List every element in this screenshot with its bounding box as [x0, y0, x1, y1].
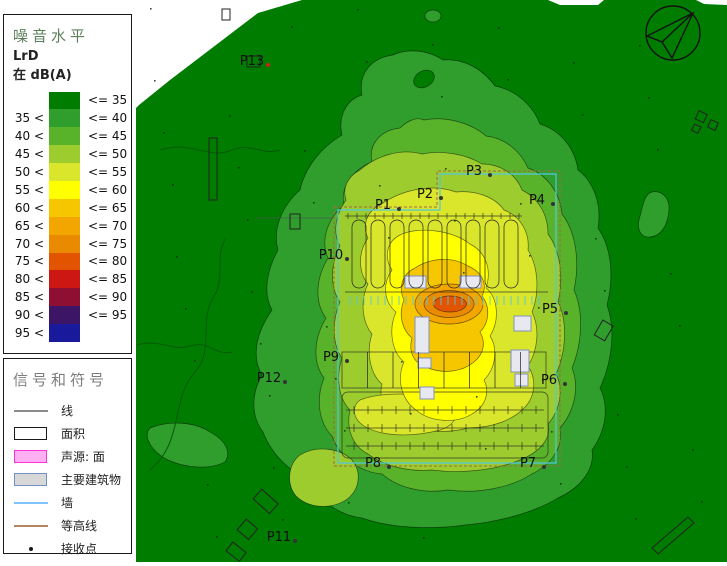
- receiver-label-P1[interactable]: P1: [375, 198, 391, 213]
- survey-mark: [282, 519, 284, 521]
- receiver-point-P2[interactable]: [439, 196, 443, 200]
- survey-mark: [582, 114, 584, 116]
- survey-mark: [150, 8, 152, 10]
- scale-to-label: <= 75: [80, 237, 127, 251]
- survey-mark: [326, 326, 328, 328]
- scale-to-label: <= 80: [80, 254, 127, 268]
- noise-zone-35-40-top: [425, 10, 441, 22]
- noise-scale-row: 80 <<= 85: [4, 270, 131, 288]
- receiver-label-P9[interactable]: P9: [323, 350, 339, 365]
- survey-mark: [269, 395, 271, 397]
- survey-mark: [388, 237, 390, 239]
- survey-mark: [626, 466, 628, 468]
- survey-mark: [485, 448, 487, 450]
- line-symbol: [14, 525, 48, 527]
- line-symbol-icon: [12, 502, 49, 504]
- symbol-row: 墙: [4, 491, 131, 514]
- symbol-row: 主要建筑物: [4, 468, 131, 491]
- scale-from-label: 35 <: [4, 111, 49, 125]
- rect-symbol-icon: [12, 473, 49, 486]
- scale-from-label: 95 <: [4, 326, 49, 340]
- scale-to-label: <= 40: [80, 111, 127, 125]
- receiver-label-P10[interactable]: P10: [319, 248, 343, 263]
- scale-color-swatch: [49, 181, 80, 199]
- receiver-point-P4[interactable]: [551, 202, 555, 206]
- noise-scale-row: 65 <<= 70: [4, 217, 131, 235]
- scale-color-swatch: [49, 145, 80, 163]
- noise-scale-row: 75 <<= 80: [4, 253, 131, 271]
- survey-mark: [670, 273, 672, 275]
- scale-from-label: 85 <: [4, 290, 49, 304]
- noise-legend-quantity: LrD: [13, 49, 131, 65]
- survey-mark: [595, 238, 597, 240]
- scale-to-label: <= 65: [80, 201, 127, 215]
- noise-legend-title: 噪音水平: [13, 25, 131, 46]
- survey-mark: [463, 272, 465, 274]
- rect-symbol: [14, 427, 47, 440]
- receiver-label-P8[interactable]: P8: [365, 456, 381, 471]
- noise-legend-unit: 在 dB(A): [13, 68, 131, 84]
- noise-scale-row: 50 <<= 55: [4, 163, 131, 181]
- noise-level-legend: 噪音水平 LrD 在 dB(A) <= 3535 <<= 4040 <<= 45…: [3, 14, 132, 354]
- receiver-label-P2[interactable]: P2: [417, 187, 433, 202]
- survey-mark: [551, 431, 553, 433]
- symbol-list: 线面积声源: 面主要建筑物墙等高线接收点: [4, 399, 131, 560]
- noise-scale-row: <= 35: [4, 92, 131, 110]
- rect-symbol: [14, 473, 47, 486]
- receiver-point-P12[interactable]: [283, 380, 287, 384]
- line-symbol-icon: [12, 525, 49, 527]
- receiver-label-P3[interactable]: P3: [466, 164, 482, 179]
- receiver-point-P9[interactable]: [345, 359, 349, 363]
- receiver-label-P7[interactable]: P7: [520, 456, 536, 471]
- symbol-label: 等高线: [61, 517, 97, 534]
- scale-color-swatch: [49, 127, 80, 145]
- survey-mark: [348, 502, 350, 504]
- receiver-point-P3[interactable]: [488, 173, 492, 177]
- survey-mark: [273, 467, 275, 469]
- symbol-legend-title: 信号和符号: [13, 369, 131, 390]
- survey-mark: [507, 79, 509, 81]
- survey-mark: [291, 26, 293, 28]
- scale-color-swatch: [49, 199, 80, 217]
- receiver-point-P1[interactable]: [397, 207, 401, 211]
- symbol-row: 声源: 面: [4, 445, 131, 468]
- survey-mark: [476, 396, 478, 398]
- scale-to-label: <= 55: [80, 165, 127, 179]
- scale-to-label: <= 45: [80, 129, 127, 143]
- receiver-label-P13[interactable]: P13: [240, 54, 264, 69]
- scale-from-label: 45 <: [4, 147, 49, 161]
- survey-mark: [657, 149, 659, 151]
- survey-mark: [679, 325, 681, 327]
- survey-mark: [163, 132, 165, 134]
- scale-color-swatch: [49, 92, 80, 110]
- survey-mark: [529, 255, 531, 257]
- survey-mark: [207, 484, 209, 486]
- survey-mark: [216, 536, 218, 538]
- symbol-row: 线: [4, 399, 131, 422]
- survey-mark: [701, 501, 703, 503]
- symbol-label: 线: [61, 402, 73, 419]
- survey-mark: [185, 308, 187, 310]
- receiver-point-P7[interactable]: [542, 465, 546, 469]
- symbol-row: 面积: [4, 422, 131, 445]
- survey-mark: [260, 343, 262, 345]
- survey-mark: [635, 518, 637, 520]
- scale-color-swatch: [49, 270, 80, 288]
- survey-mark: [639, 45, 641, 47]
- receiver-point-P10[interactable]: [345, 257, 349, 261]
- survey-mark: [247, 219, 249, 221]
- scale-color-swatch: [49, 288, 80, 306]
- scale-from-label: 65 <: [4, 219, 49, 233]
- scale-from-label: 75 <: [4, 254, 49, 268]
- scale-to-label: <= 35: [80, 93, 127, 107]
- symbol-label: 接收点: [61, 540, 97, 557]
- survey-mark: [238, 167, 240, 169]
- receiver-point-P5[interactable]: [564, 311, 568, 315]
- rect-symbol-icon: [12, 450, 49, 463]
- symbol-row: 接收点: [4, 537, 131, 560]
- symbol-label: 声源: 面: [61, 448, 105, 465]
- rect-symbol: [14, 450, 47, 463]
- scale-color-swatch: [49, 163, 80, 181]
- survey-mark: [194, 360, 196, 362]
- noise-scale-row: 85 <<= 90: [4, 288, 131, 306]
- survey-mark: [538, 307, 540, 309]
- survey-mark: [410, 413, 412, 415]
- line-symbol-icon: [12, 410, 49, 412]
- scale-color-swatch: [49, 235, 80, 253]
- survey-mark: [176, 256, 178, 258]
- noise-scale-row: 40 <<= 45: [4, 127, 131, 145]
- dot-symbol-icon: [12, 547, 49, 551]
- scale-color-swatch: [49, 253, 80, 271]
- survey-mark: [454, 220, 456, 222]
- noise-scale-row: 90 <<= 95: [4, 306, 131, 324]
- survey-mark: [617, 414, 619, 416]
- symbol-label: 面积: [61, 425, 85, 442]
- survey-mark: [520, 203, 522, 205]
- symbol-label: 墙: [61, 494, 73, 511]
- scale-to-label: <= 60: [80, 183, 127, 197]
- survey-mark: [648, 97, 650, 99]
- symbol-legend: 信号和符号 线面积声源: 面主要建筑物墙等高线接收点: [3, 358, 132, 554]
- survey-mark: [423, 537, 425, 539]
- dot-symbol: [29, 547, 33, 551]
- survey-mark: [357, 9, 359, 11]
- survey-mark: [604, 290, 606, 292]
- survey-mark: [172, 184, 174, 186]
- scale-from-label: 60 <: [4, 201, 49, 215]
- noise-zone-45-50-lobe: [290, 449, 359, 506]
- scale-color-swatch: [49, 217, 80, 235]
- scale-from-label: 70 <: [4, 237, 49, 251]
- noise-scale-row: 35 <<= 40: [4, 109, 131, 127]
- receiver-point-P6[interactable]: [563, 382, 567, 386]
- survey-mark: [432, 44, 434, 46]
- line-symbol: [14, 502, 48, 504]
- survey-mark: [304, 150, 306, 152]
- survey-mark: [560, 483, 562, 485]
- line-symbol: [14, 410, 48, 412]
- survey-mark: [154, 80, 156, 82]
- scale-from-label: 90 <: [4, 308, 49, 322]
- receiver-label-P12[interactable]: P12: [257, 371, 281, 386]
- scale-to-label: <= 70: [80, 219, 127, 233]
- receiver-label-P11[interactable]: P11: [267, 530, 291, 545]
- scale-color-swatch: [49, 306, 80, 324]
- survey-mark: [335, 378, 337, 380]
- survey-mark: [441, 96, 443, 98]
- rect-symbol-icon: [12, 427, 49, 440]
- survey-mark: [401, 361, 403, 363]
- receiver-label-P6[interactable]: P6: [541, 373, 557, 388]
- survey-mark: [313, 202, 315, 204]
- scale-color-swatch: [49, 109, 80, 127]
- receiver-point-P13[interactable]: [266, 63, 270, 67]
- noise-scale-row: 45 <<= 50: [4, 145, 131, 163]
- survey-mark: [573, 62, 575, 64]
- receiver-label-P4[interactable]: P4: [529, 193, 545, 208]
- noise-scale-row: 70 <<= 75: [4, 235, 131, 253]
- symbol-row: 等高线: [4, 514, 131, 537]
- symbol-label: 主要建筑物: [61, 471, 121, 488]
- noise-scale: <= 3535 <<= 4040 <<= 4545 <<= 5050 <<= 5…: [4, 92, 131, 342]
- scale-to-label: <= 90: [80, 290, 127, 304]
- survey-mark: [229, 115, 231, 117]
- scale-to-label: <= 85: [80, 272, 127, 286]
- survey-mark: [445, 168, 447, 170]
- noise-scale-row: 55 <<= 60: [4, 181, 131, 199]
- scale-from-label: 80 <: [4, 272, 49, 286]
- scale-from-label: 50 <: [4, 165, 49, 179]
- survey-mark: [692, 449, 694, 451]
- survey-mark: [366, 61, 368, 63]
- scale-to-label: <= 95: [80, 308, 127, 322]
- survey-mark: [379, 185, 381, 187]
- receiver-label-P5[interactable]: P5: [542, 302, 558, 317]
- scale-from-label: 40 <: [4, 129, 49, 143]
- survey-mark: [498, 27, 500, 29]
- survey-mark: [344, 430, 346, 432]
- receiver-point-P8[interactable]: [387, 465, 391, 469]
- survey-mark: [251, 291, 253, 293]
- scale-color-swatch: [49, 324, 80, 342]
- noise-scale-row: 95 <: [4, 324, 131, 342]
- noise-scale-row: 60 <<= 65: [4, 199, 131, 217]
- receiver-point-P11[interactable]: [293, 539, 297, 543]
- scale-from-label: 55 <: [4, 183, 49, 197]
- scale-to-label: <= 50: [80, 147, 127, 161]
